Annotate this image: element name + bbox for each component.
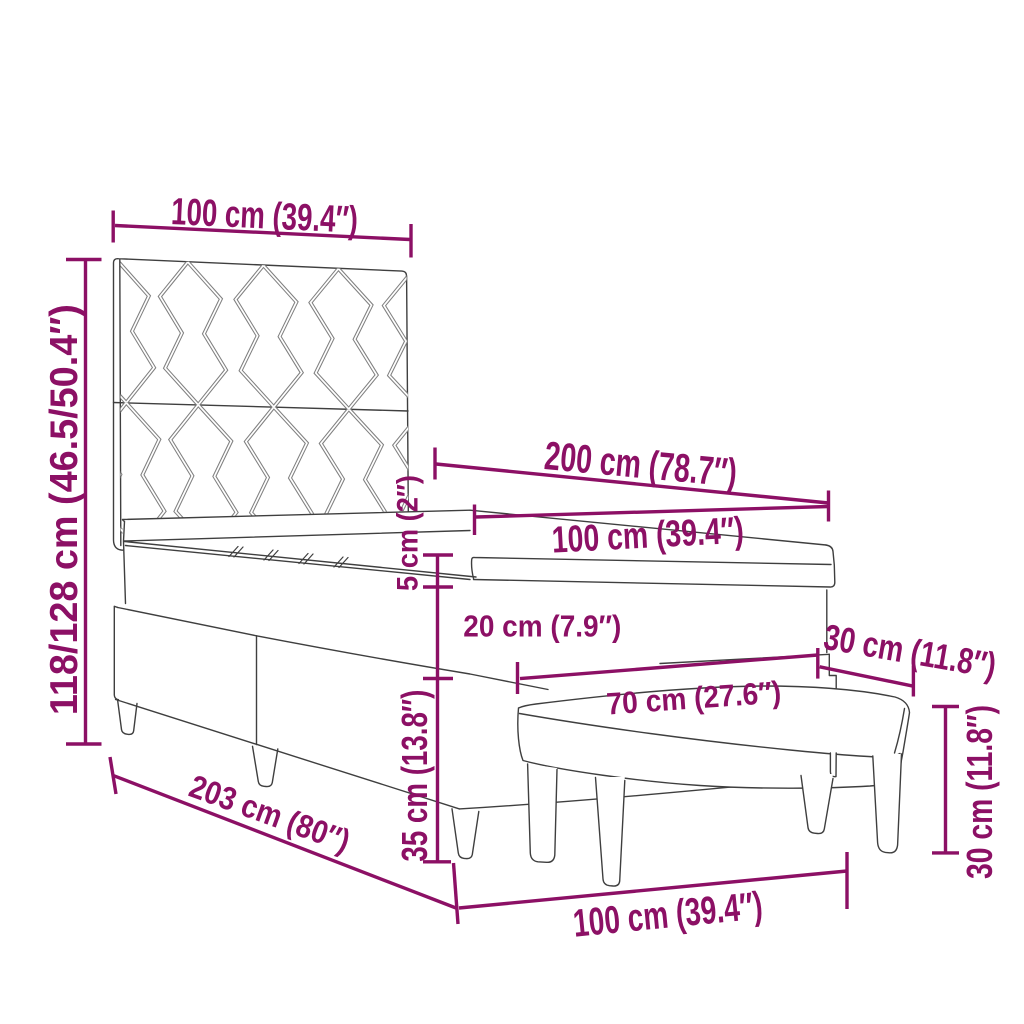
svg-text:5 cm (2″): 5 cm (2″) bbox=[392, 475, 425, 591]
svg-text:20 cm (7.9″): 20 cm (7.9″) bbox=[463, 608, 621, 643]
svg-text:30 cm (11.8″): 30 cm (11.8″) bbox=[959, 705, 1000, 879]
svg-text:100 cm (39.4″): 100 cm (39.4″) bbox=[170, 191, 359, 242]
svg-text:118/128 cm (46.5/50.4″): 118/128 cm (46.5/50.4″) bbox=[43, 304, 86, 715]
svg-text:35 cm (13.8″): 35 cm (13.8″) bbox=[394, 690, 435, 862]
